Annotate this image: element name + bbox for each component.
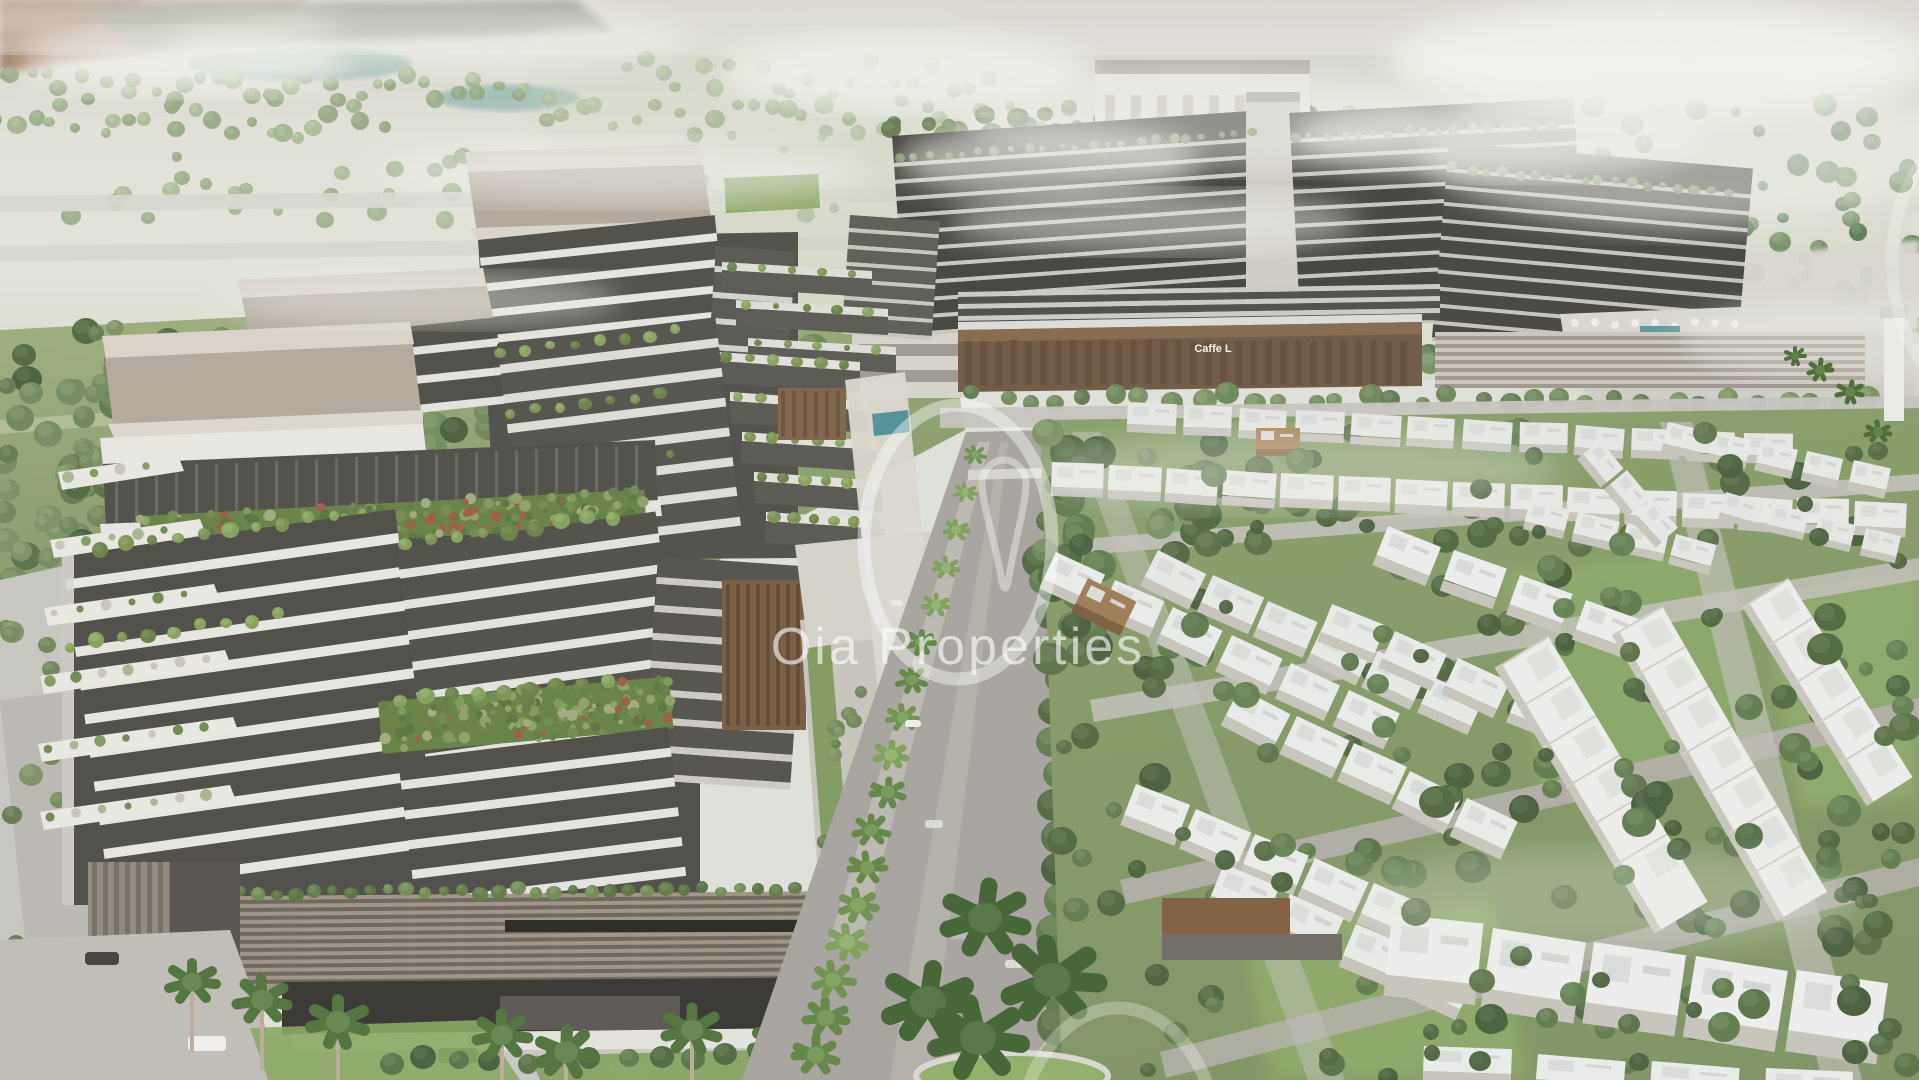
svg-text:Oia Properties: Oia Properties bbox=[771, 618, 1145, 676]
